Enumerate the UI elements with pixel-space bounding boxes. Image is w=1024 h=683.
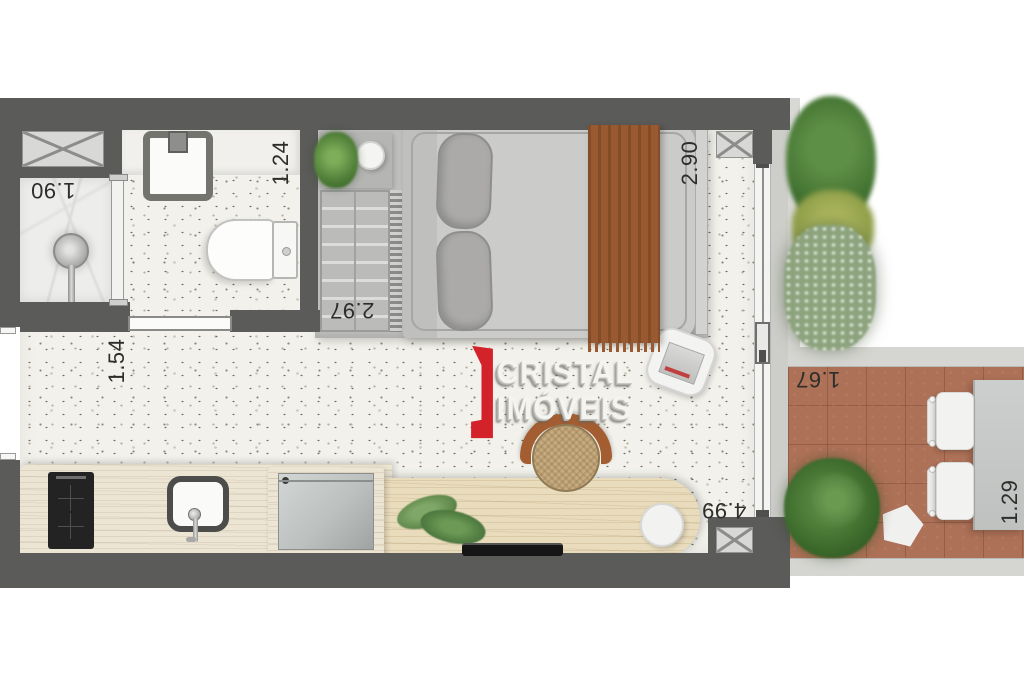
dimension-label: 1.29 [997,471,1023,533]
wall-bathroom-front [230,310,320,332]
door-jamb [0,453,16,460]
entrance-opening [0,327,20,460]
pillow [435,132,493,230]
shaft-box-icon [22,131,104,167]
faucet-icon [168,131,188,153]
wall-left [0,460,20,556]
balcony-plant [806,474,864,526]
sliding-door-handle [755,322,770,364]
balcony-parapet [788,347,1024,367]
dimension-label: 1.90 [22,177,84,203]
door-jamb [0,327,16,334]
dimension-label: 1.24 [268,132,294,194]
balcony-chair-armrest [927,398,936,445]
dimension-label: 4.99 [693,497,755,523]
dimension-label: 2.90 [677,132,703,194]
dimension-label: 1.54 [104,330,130,392]
planter-bush [784,225,876,350]
potted-plant [314,132,358,188]
balcony-door-sill [771,130,788,525]
magazine [658,342,705,385]
built-in-appliance [278,473,374,550]
bathroom-door-threshold [128,316,232,331]
shower-door [111,177,124,303]
round-plate [640,503,684,547]
shaft-box-icon [716,131,753,158]
faucet-stem [193,518,198,542]
wall-left [0,130,20,330]
balcony-chair [936,392,974,450]
induction-cooktop [48,472,94,549]
brand-name-line2: IMÓVEIS [497,391,653,428]
divider-screen [390,190,402,332]
shaft-box-icon [716,527,753,553]
dimension-label: 1.67 [787,366,849,392]
kitchen-sink [167,476,229,532]
brand-name-line1: CRISTAL [497,355,653,392]
appliance-frame [268,467,384,557]
brand-mark-icon [469,344,495,440]
bed-runner [588,125,660,343]
balcony-chair-armrest [927,468,936,515]
round-vase [356,141,385,170]
brand-logo: CRISTAL IMÓVEIS [466,340,656,442]
balcony-chair [936,462,974,520]
floor-plan-canvas: 1.90 1.24 2.97 2.90 1.54 4.99 1.67 1.29 … [0,0,1024,683]
toilet [206,219,276,281]
toilet-tank [272,221,298,279]
tv-panel [462,543,563,556]
balcony-parapet [788,558,1024,576]
wall-stub [753,130,772,164]
wall-top [0,98,790,130]
wall-bottom [0,553,790,588]
pillow [435,230,493,332]
dimension-label: 2.97 [321,297,383,323]
shower-drain-icon [53,233,89,269]
